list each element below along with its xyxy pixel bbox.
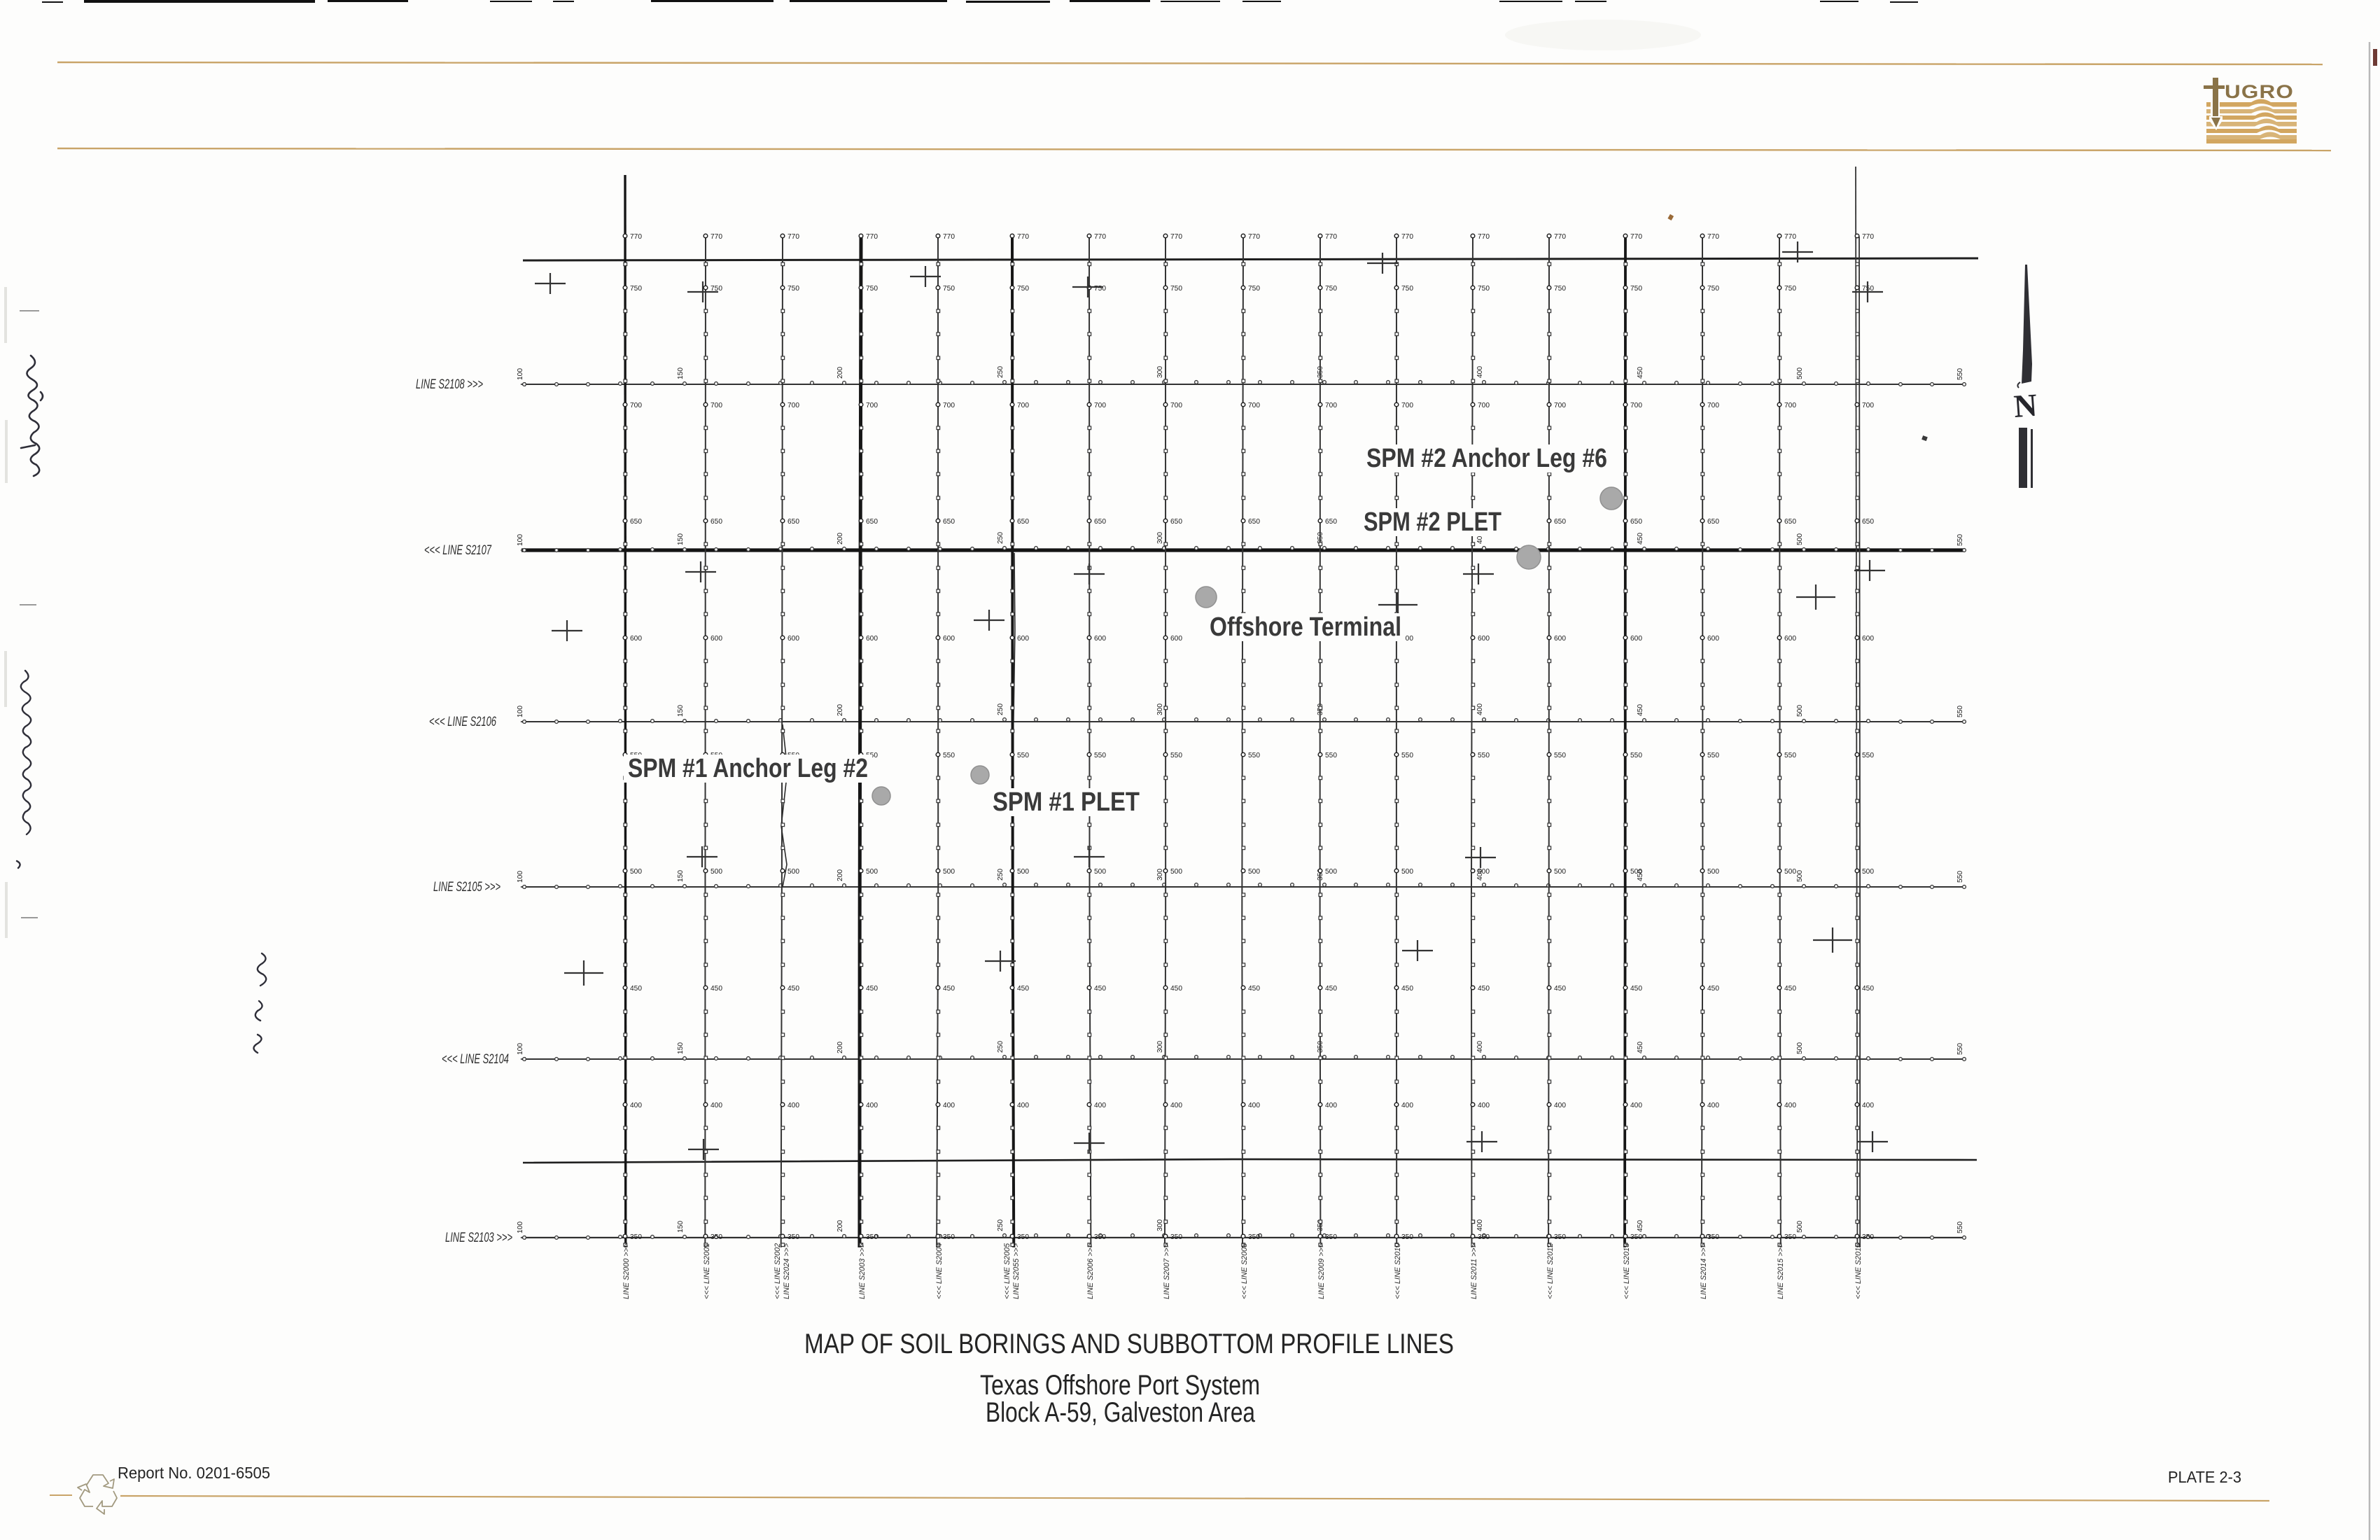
svg-text:500: 500	[1795, 533, 1804, 545]
svg-text:LINE S2024 >>>: LINE S2024 >>>	[783, 1242, 791, 1299]
svg-text:700: 700	[630, 401, 642, 409]
svg-text:650: 650	[1248, 517, 1260, 526]
svg-text:450: 450	[1554, 984, 1566, 993]
svg-text:LINE S2000 >>>: LINE S2000 >>>	[622, 1242, 631, 1299]
svg-text:350: 350	[1784, 1233, 1796, 1241]
svg-text:700: 700	[1094, 401, 1106, 409]
svg-text:400: 400	[1170, 1101, 1182, 1109]
svg-text:650: 650	[1017, 517, 1029, 526]
svg-text:400: 400	[1478, 1101, 1490, 1109]
svg-text:770: 770	[1784, 232, 1796, 241]
svg-text:550: 550	[1401, 751, 1413, 759]
svg-text:650: 650	[1094, 517, 1106, 526]
svg-text:650: 650	[943, 517, 955, 526]
svg-text:700: 700	[1248, 401, 1260, 409]
svg-text:450: 450	[1248, 984, 1260, 993]
svg-text:550: 550	[1325, 751, 1337, 759]
svg-text:700: 700	[1784, 401, 1796, 409]
svg-text:650: 650	[1707, 517, 1719, 526]
svg-text:770: 770	[1325, 232, 1337, 241]
svg-text:500: 500	[866, 867, 878, 876]
svg-text:600: 600	[1478, 634, 1490, 643]
svg-text:550: 550	[1707, 751, 1719, 759]
svg-text:550: 550	[1784, 751, 1796, 759]
svg-text:770: 770	[866, 232, 878, 241]
svg-text:700: 700	[1707, 401, 1719, 409]
svg-text:750: 750	[1017, 284, 1029, 293]
svg-text:400: 400	[1554, 1101, 1566, 1109]
svg-text:650: 650	[1784, 517, 1796, 526]
svg-text:400: 400	[1476, 703, 1484, 715]
svg-text:500: 500	[1795, 367, 1804, 379]
svg-text:650: 650	[630, 517, 642, 526]
svg-text:200: 200	[836, 533, 844, 545]
svg-text:750: 750	[1478, 284, 1490, 293]
svg-text:750: 750	[630, 284, 642, 293]
svg-text:750: 750	[866, 284, 878, 293]
svg-text:350: 350	[1325, 1233, 1337, 1241]
svg-text:450: 450	[630, 984, 642, 993]
svg-text:400: 400	[1784, 1101, 1796, 1109]
svg-text:500: 500	[1795, 1042, 1804, 1054]
svg-text:500: 500	[710, 867, 722, 876]
svg-text:750: 750	[1325, 284, 1337, 293]
svg-text:700: 700	[1478, 401, 1490, 409]
svg-text:400: 400	[1630, 1101, 1642, 1109]
svg-text:700: 700	[943, 401, 955, 409]
svg-text:<<< LINE S2004: <<< LINE S2004	[935, 1243, 944, 1299]
svg-text:750: 750	[1248, 284, 1260, 293]
svg-text:600: 600	[943, 634, 955, 643]
svg-text:SPM #1 Anchor Leg #2: SPM #1 Anchor Leg #2	[628, 754, 868, 783]
svg-text:LINE S2108 >>>: LINE S2108 >>>	[416, 377, 483, 392]
svg-text:<<< LINE S2104: <<< LINE S2104	[442, 1052, 509, 1067]
svg-text:350: 350	[787, 1233, 799, 1241]
svg-text:350: 350	[710, 1233, 722, 1241]
svg-text:550: 550	[1956, 368, 1964, 380]
svg-text:LINE S2009 >>>: LINE S2009 >>>	[1317, 1242, 1326, 1299]
svg-text:500: 500	[1017, 867, 1029, 876]
svg-text:400: 400	[1325, 1101, 1337, 1109]
svg-text:Offshore Terminal: Offshore Terminal	[1210, 612, 1401, 642]
svg-text:300: 300	[1156, 703, 1164, 715]
svg-text:600: 600	[710, 634, 722, 643]
svg-text:600: 600	[1554, 634, 1566, 643]
svg-text:770: 770	[1630, 232, 1642, 241]
svg-text:600: 600	[1017, 634, 1029, 643]
svg-text:400: 400	[1707, 1101, 1719, 1109]
svg-text:500: 500	[943, 867, 955, 876]
svg-text:LINE S2055 >>>: LINE S2055 >>>	[1012, 1242, 1021, 1299]
svg-text:400: 400	[630, 1101, 642, 1109]
svg-text:450: 450	[710, 984, 722, 993]
svg-text:700: 700	[1862, 401, 1874, 409]
svg-text:500: 500	[1401, 867, 1413, 876]
svg-text:770: 770	[787, 232, 799, 241]
svg-text:550: 550	[1956, 1043, 1964, 1055]
svg-text:650: 650	[1554, 517, 1566, 526]
svg-text:550: 550	[1017, 751, 1029, 759]
svg-text:300: 300	[1156, 532, 1164, 544]
svg-text:SPM #2 PLET: SPM #2 PLET	[1364, 507, 1501, 537]
svg-text:<<< LINE S2106: <<< LINE S2106	[429, 715, 496, 729]
svg-text:400: 400	[1476, 1219, 1484, 1231]
svg-text:770: 770	[1478, 232, 1490, 241]
svg-text:250: 250	[996, 869, 1004, 881]
svg-text:400: 400	[866, 1101, 878, 1109]
svg-text:LINE S2003 >>>: LINE S2003 >>>	[858, 1242, 867, 1299]
svg-text:100: 100	[516, 706, 524, 717]
svg-text:<<< LINE S2107: <<< LINE S2107	[424, 543, 492, 558]
svg-text:100: 100	[516, 871, 524, 883]
svg-text:650: 650	[1630, 517, 1642, 526]
svg-text:LINE S2105 >>>: LINE S2105 >>>	[433, 880, 500, 895]
svg-text:250: 250	[996, 532, 1004, 544]
svg-text:400: 400	[1094, 1101, 1106, 1109]
svg-text:500: 500	[1707, 867, 1719, 876]
svg-text:550: 550	[1478, 751, 1490, 759]
svg-text:750: 750	[787, 284, 799, 293]
svg-text:400: 400	[1862, 1101, 1874, 1109]
svg-text:650: 650	[866, 517, 878, 526]
svg-text:350: 350	[1554, 1233, 1566, 1241]
svg-text:500: 500	[1478, 867, 1490, 876]
svg-text:770: 770	[1862, 232, 1874, 241]
svg-text:350: 350	[630, 1233, 642, 1241]
svg-text:200: 200	[836, 869, 844, 881]
svg-text:<<< LINE S2012: <<< LINE S2012	[1546, 1243, 1555, 1299]
svg-text:600: 600	[1094, 634, 1106, 643]
svg-text:770: 770	[1017, 232, 1029, 241]
svg-text:350: 350	[866, 1233, 878, 1241]
svg-text:150: 150	[676, 870, 685, 882]
svg-text:450: 450	[1636, 704, 1644, 716]
svg-text:700: 700	[1017, 401, 1029, 409]
svg-text:250: 250	[996, 366, 1004, 378]
svg-text:600: 600	[1707, 634, 1719, 643]
svg-text:700: 700	[1554, 401, 1566, 409]
svg-text:550: 550	[1956, 871, 1964, 883]
svg-text:770: 770	[710, 232, 722, 241]
svg-text:750: 750	[1784, 284, 1796, 293]
svg-text:200: 200	[836, 704, 844, 716]
svg-text:500: 500	[1795, 1221, 1804, 1233]
svg-text:350: 350	[1401, 1233, 1413, 1241]
svg-text:700: 700	[1170, 401, 1182, 409]
svg-text:600: 600	[1630, 634, 1642, 643]
svg-text:200: 200	[836, 1220, 844, 1232]
svg-text:450: 450	[1636, 1042, 1644, 1053]
svg-text:<<< LINE S2013: <<< LINE S2013	[1623, 1242, 1631, 1299]
svg-text:MAP OF SOIL BORINGS AND SUBBOT: MAP OF SOIL BORINGS AND SUBBOTTOM PROFIL…	[804, 1329, 1454, 1359]
svg-text:250: 250	[996, 1219, 1004, 1231]
svg-text:100: 100	[516, 368, 524, 380]
svg-text:700: 700	[787, 401, 799, 409]
svg-text:500: 500	[1795, 705, 1804, 717]
svg-text:N: N	[2012, 387, 2038, 424]
svg-text:600: 600	[1170, 634, 1182, 643]
svg-text:350: 350	[1094, 1233, 1106, 1241]
svg-text:450: 450	[1636, 1220, 1644, 1232]
svg-text:LINE S2006 >>>: LINE S2006 >>>	[1086, 1242, 1095, 1299]
svg-text:700: 700	[1401, 401, 1413, 409]
svg-text:600: 600	[1862, 634, 1874, 643]
svg-text:750: 750	[1630, 284, 1642, 293]
svg-text:450: 450	[866, 984, 878, 993]
svg-text:500: 500	[1795, 870, 1804, 882]
svg-text:<<< LINE S2016: <<< LINE S2016	[1854, 1242, 1863, 1299]
svg-text:350: 350	[1478, 1233, 1490, 1241]
svg-text:<<< LINE S2010: <<< LINE S2010	[1394, 1242, 1402, 1299]
svg-text:100: 100	[516, 534, 524, 546]
svg-text:770: 770	[1248, 232, 1260, 241]
svg-text:750: 750	[1170, 284, 1182, 293]
svg-text:500: 500	[1784, 867, 1796, 876]
svg-text:<<< LINE S2005: <<< LINE S2005	[1003, 1242, 1011, 1299]
svg-text:350: 350	[1170, 1233, 1182, 1241]
svg-text:400: 400	[1476, 1041, 1484, 1053]
svg-text:LINE S2103 >>>: LINE S2103 >>>	[445, 1231, 512, 1245]
svg-text:250: 250	[996, 1041, 1004, 1053]
svg-text:<<< LINE S2001: <<< LINE S2001	[703, 1243, 711, 1299]
svg-text:LINE S2011 >>>: LINE S2011 >>>	[1470, 1242, 1478, 1299]
svg-text:550: 550	[1248, 751, 1260, 759]
svg-text:SPM #2 Anchor Leg #6: SPM #2 Anchor Leg #6	[1366, 444, 1607, 473]
svg-text:450: 450	[1707, 984, 1719, 993]
svg-text:600: 600	[787, 634, 799, 643]
svg-text:350: 350	[1248, 1233, 1260, 1241]
svg-text:450: 450	[1478, 984, 1490, 993]
svg-text:450: 450	[1784, 984, 1796, 993]
svg-text:450: 450	[1094, 984, 1106, 993]
svg-text:250: 250	[996, 703, 1004, 715]
svg-text:150: 150	[676, 1042, 685, 1054]
svg-text:350: 350	[1707, 1233, 1719, 1241]
svg-text:450: 450	[943, 984, 955, 993]
svg-text:Report No. 0201-6505: Report No. 0201-6505	[118, 1464, 270, 1482]
svg-text:400: 400	[1401, 1101, 1413, 1109]
svg-text:450: 450	[1862, 984, 1874, 993]
svg-text:770: 770	[1170, 232, 1182, 241]
svg-text:500: 500	[630, 867, 642, 876]
svg-text:550: 550	[1094, 751, 1106, 759]
svg-text:600: 600	[1784, 634, 1796, 643]
svg-text:UGRO: UGRO	[2225, 81, 2294, 102]
svg-text:500: 500	[1248, 867, 1260, 876]
svg-text:770: 770	[1707, 232, 1719, 241]
svg-text:200: 200	[836, 1042, 844, 1053]
svg-text:350: 350	[1862, 1233, 1874, 1241]
svg-text:500: 500	[1630, 867, 1642, 876]
svg-text:150: 150	[676, 367, 685, 379]
svg-text:770: 770	[943, 232, 955, 241]
svg-text:400: 400	[1248, 1101, 1260, 1109]
svg-text:400: 400	[943, 1101, 955, 1109]
svg-text:350: 350	[943, 1233, 955, 1241]
svg-text:500: 500	[1170, 867, 1182, 876]
svg-text:650: 650	[1170, 517, 1182, 526]
svg-text:770: 770	[630, 232, 642, 241]
svg-text:Texas Offshore Port System: Texas Offshore Port System	[980, 1370, 1260, 1401]
svg-text:100: 100	[516, 1043, 524, 1055]
svg-text:400: 400	[710, 1101, 722, 1109]
svg-text:550: 550	[943, 751, 955, 759]
svg-text:600: 600	[866, 634, 878, 643]
svg-text:500: 500	[1554, 867, 1566, 876]
svg-text:750: 750	[943, 284, 955, 293]
svg-text:<<< LINE S2002: <<< LINE S2002	[773, 1243, 782, 1299]
svg-text:400: 400	[1017, 1101, 1029, 1109]
svg-text:400: 400	[787, 1101, 799, 1109]
svg-text:650: 650	[1325, 517, 1337, 526]
svg-text:450: 450	[1636, 367, 1644, 379]
svg-text:750: 750	[1401, 284, 1413, 293]
svg-text:550: 550	[1554, 751, 1566, 759]
svg-text:770: 770	[1554, 232, 1566, 241]
svg-text:LINE S2014 >>>: LINE S2014 >>>	[1700, 1242, 1708, 1299]
svg-text:750: 750	[1707, 284, 1719, 293]
svg-text:450: 450	[1170, 984, 1182, 993]
svg-text:450: 450	[1630, 984, 1642, 993]
svg-text:Block A-59, Galveston Area: Block A-59, Galveston Area	[986, 1397, 1256, 1428]
svg-text:300: 300	[1156, 1219, 1164, 1231]
svg-text:450: 450	[1017, 984, 1029, 993]
svg-text:550: 550	[1862, 751, 1874, 759]
svg-text:550: 550	[1956, 534, 1964, 546]
svg-text:SPM #1 PLET: SPM #1 PLET	[993, 787, 1140, 817]
svg-text:450: 450	[1636, 533, 1644, 545]
svg-text:450: 450	[787, 984, 799, 993]
svg-text:550: 550	[1630, 751, 1642, 759]
svg-text:300: 300	[1156, 869, 1164, 881]
svg-text:350: 350	[1630, 1233, 1642, 1241]
svg-text:PLATE 2-3: PLATE 2-3	[2168, 1468, 2241, 1486]
svg-text:150: 150	[676, 533, 685, 545]
svg-text:500: 500	[1325, 867, 1337, 876]
svg-text:600: 600	[630, 634, 642, 643]
svg-text:500: 500	[1094, 867, 1106, 876]
svg-text:300: 300	[1156, 366, 1164, 378]
svg-text:100: 100	[516, 1221, 524, 1233]
svg-text:350: 350	[1017, 1233, 1029, 1241]
svg-text:LINE S2007 >>>: LINE S2007 >>>	[1163, 1242, 1171, 1299]
svg-text:700: 700	[710, 401, 722, 409]
svg-text:650: 650	[1862, 517, 1874, 526]
svg-text:650: 650	[710, 517, 722, 526]
svg-text:750: 750	[1554, 284, 1566, 293]
svg-text:700: 700	[866, 401, 878, 409]
svg-text:770: 770	[1401, 232, 1413, 241]
svg-text:450: 450	[1325, 984, 1337, 993]
svg-text:200: 200	[836, 367, 844, 379]
svg-text:550: 550	[1956, 1221, 1964, 1233]
svg-text:150: 150	[676, 705, 685, 717]
svg-text:<<< LINE S2008: <<< LINE S2008	[1240, 1242, 1249, 1299]
svg-text:750: 750	[1094, 284, 1106, 293]
svg-text:400: 400	[1476, 366, 1484, 378]
svg-text:LINE S2015 >>>: LINE S2015 >>>	[1777, 1242, 1785, 1299]
svg-text:500: 500	[1862, 867, 1874, 876]
svg-text:550: 550	[1956, 706, 1964, 717]
svg-text:700: 700	[1325, 401, 1337, 409]
svg-text:300: 300	[1156, 1041, 1164, 1053]
svg-text:700: 700	[1630, 401, 1642, 409]
svg-text:650: 650	[787, 517, 799, 526]
svg-text:150: 150	[676, 1221, 685, 1233]
svg-text:500: 500	[787, 867, 799, 876]
svg-text:770: 770	[1094, 232, 1106, 241]
svg-text:550: 550	[1170, 751, 1182, 759]
svg-text:450: 450	[1401, 984, 1413, 993]
